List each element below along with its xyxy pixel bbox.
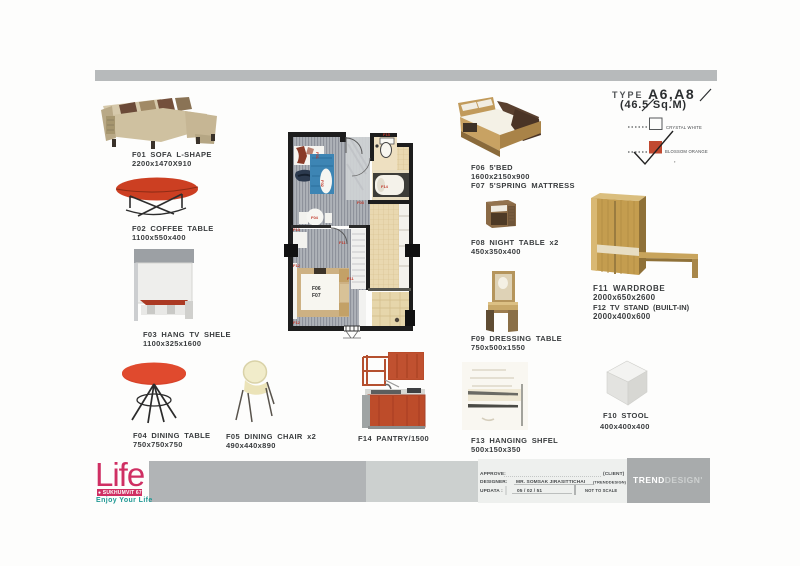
svg-text:F02: F02 — [320, 180, 325, 188]
svg-text:F15: F15 — [383, 132, 391, 137]
svg-text:F04: F04 — [311, 215, 319, 220]
svg-text:NOT TO SCALE: NOT TO SCALE — [585, 488, 617, 493]
svg-text:F06: F06 — [312, 286, 321, 292]
svg-text:F14: F14 — [381, 184, 389, 189]
svg-text:F11: F11 — [339, 240, 346, 245]
svg-text:,: , — [674, 158, 676, 164]
svg-text:F12: F12 — [293, 320, 301, 325]
svg-text:BLOSSOM ORANGE: BLOSSOM ORANGE — [665, 149, 708, 154]
svg-text:UPDATA :: UPDATA : — [480, 488, 503, 494]
svg-text:F12: F12 — [293, 263, 301, 268]
svg-text:(TRENDDESIGN): (TRENDDESIGN) — [593, 480, 627, 485]
svg-text:DESIGNER:: DESIGNER: — [480, 479, 508, 485]
svg-text:F11: F11 — [347, 276, 354, 281]
svg-text:APPROVE:: APPROVE: — [480, 471, 506, 477]
svg-text:05 / 02 / 51: 05 / 02 / 51 — [517, 488, 542, 494]
svg-text:F01: F01 — [315, 152, 320, 160]
svg-text:F13: F13 — [293, 227, 301, 232]
svg-text:MR. SOMSAK JIRASITTICHAI: MR. SOMSAK JIRASITTICHAI — [516, 479, 586, 485]
svg-text:F03: F03 — [357, 200, 365, 205]
svg-text:CRYSTAL WHITE: CRYSTAL WHITE — [666, 125, 702, 130]
svg-text:F07: F07 — [312, 293, 321, 299]
svg-text:(CLIENT): (CLIENT) — [603, 471, 625, 477]
